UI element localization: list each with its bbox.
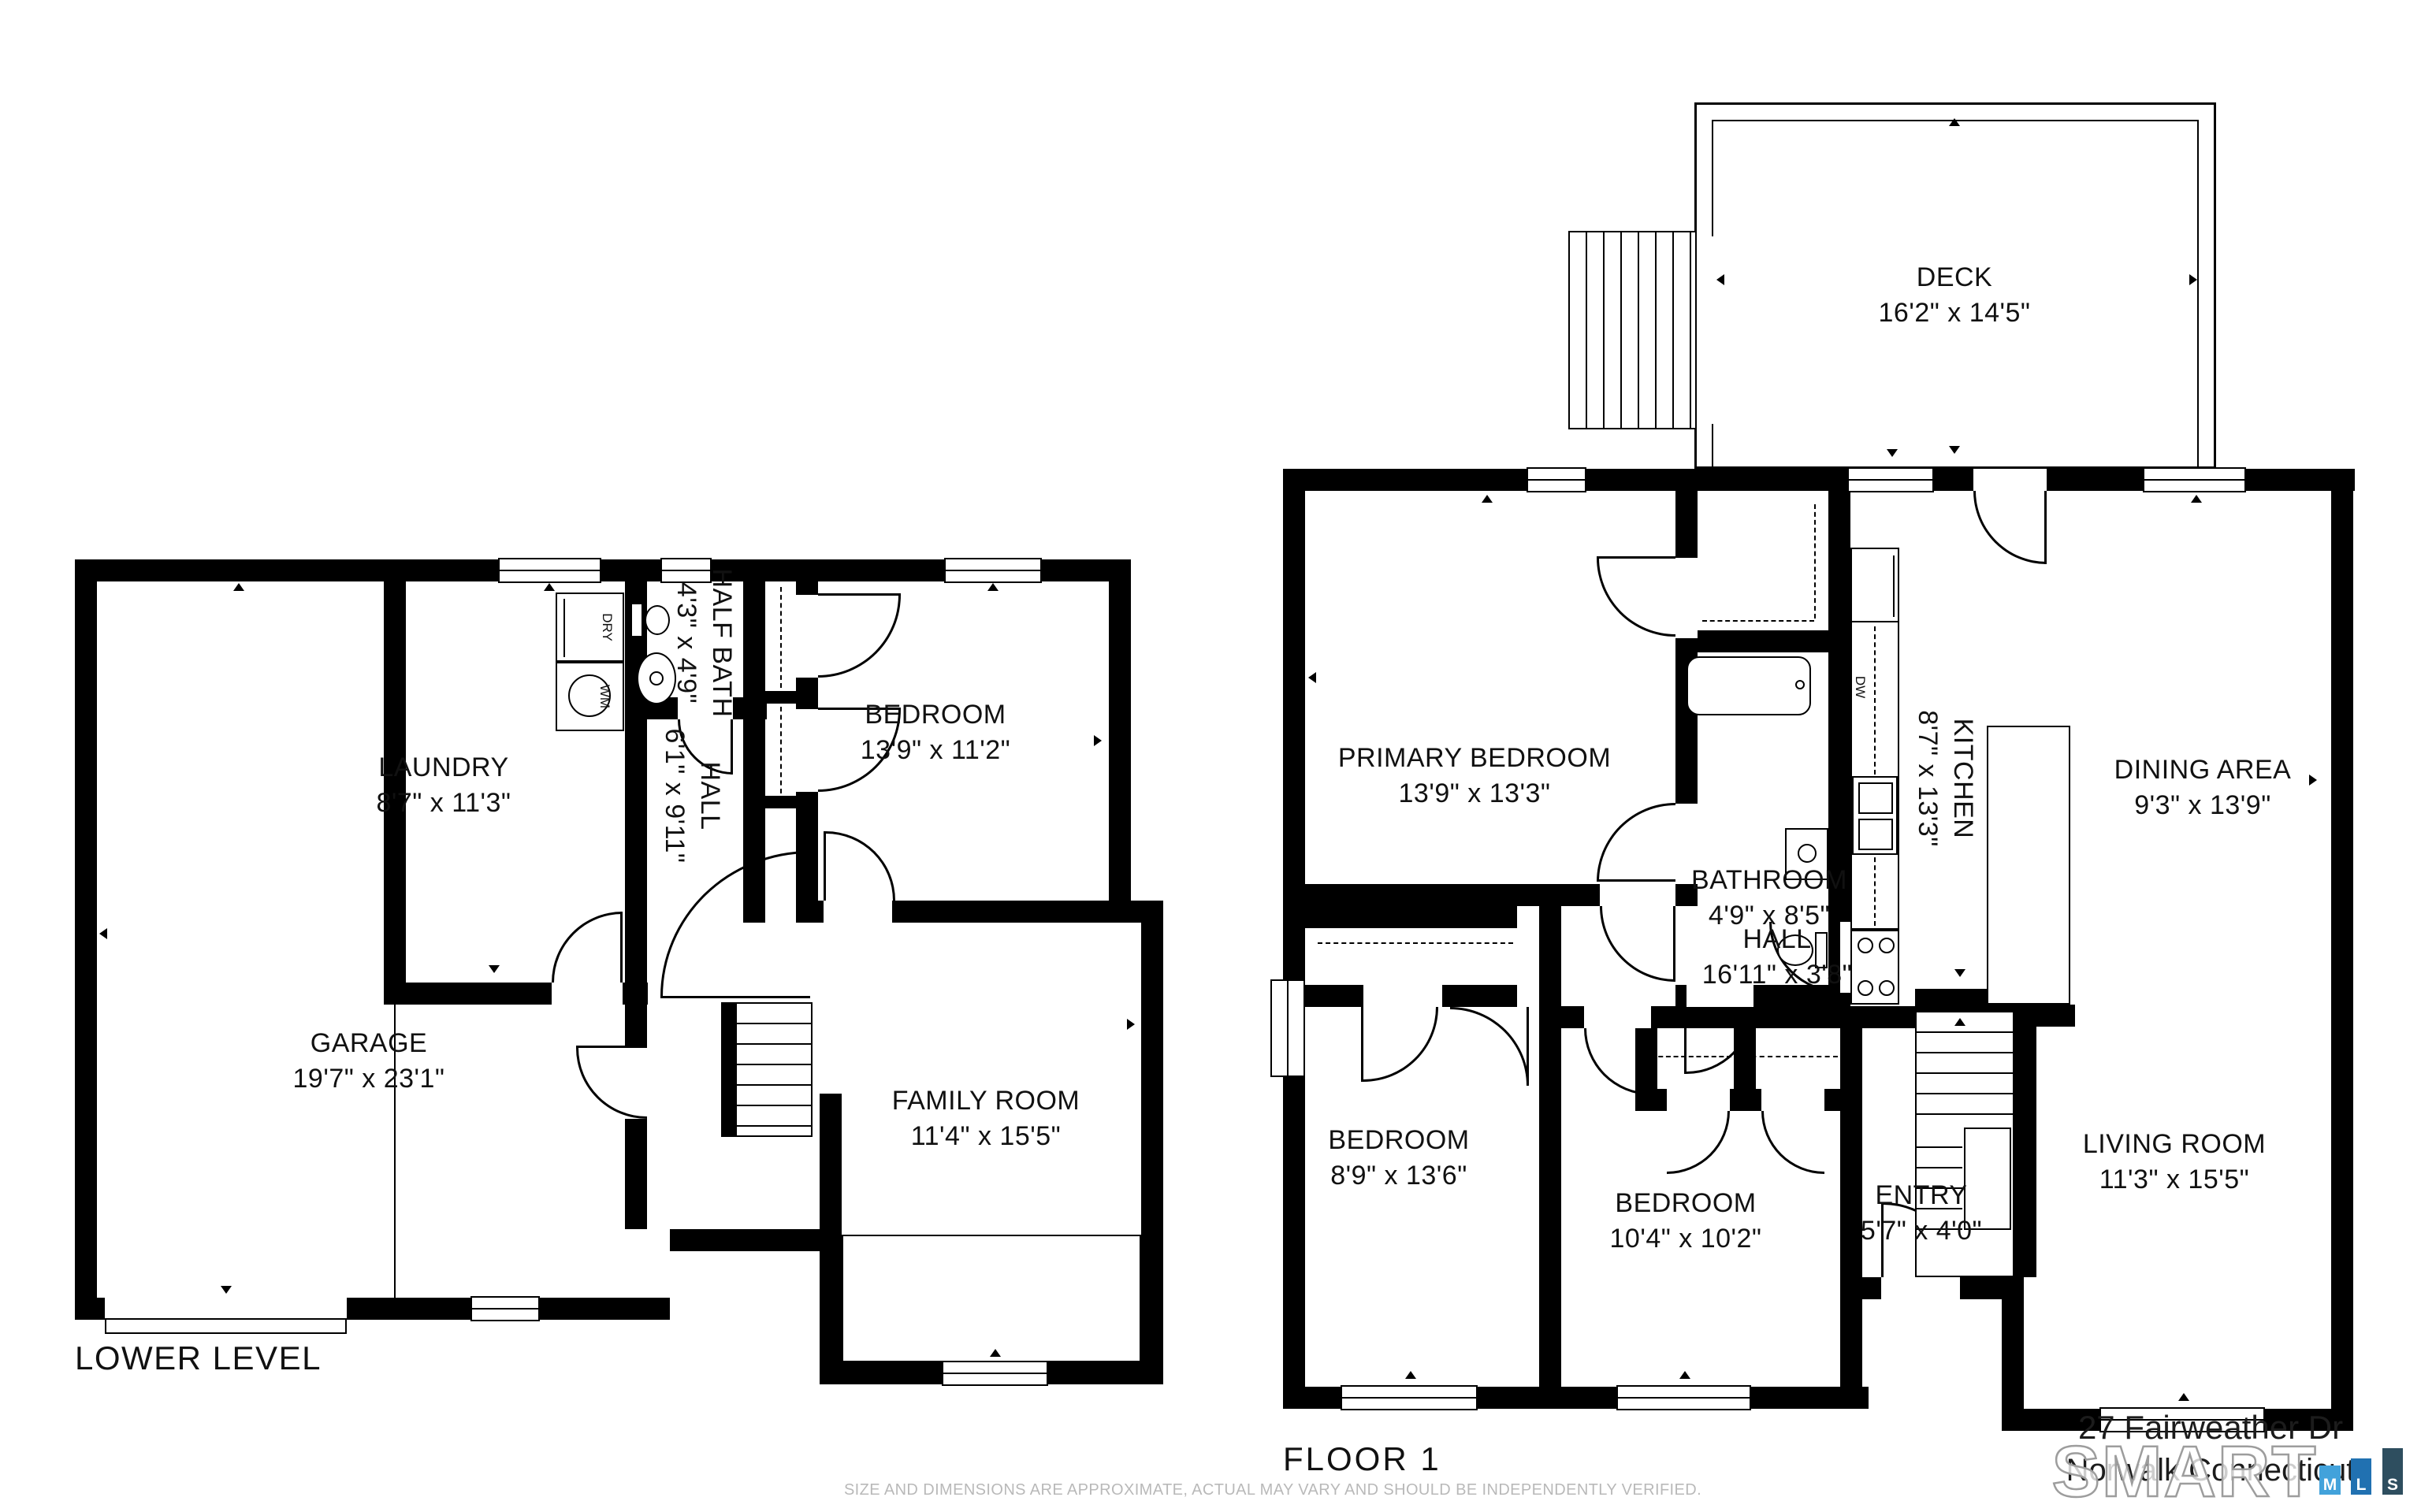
door-gap [1667, 1089, 1730, 1111]
mls-logo-l: L [2351, 1458, 2371, 1495]
room-name: GARAGE [251, 1026, 487, 1061]
wall [1675, 630, 1850, 652]
fridge-detail [1893, 555, 1895, 617]
door-arc [552, 912, 623, 983]
closet-dash-line [780, 587, 782, 688]
tick-marker [1127, 1019, 1135, 1030]
mls-letter: L [2356, 1476, 2367, 1495]
door-gap [1584, 1006, 1651, 1028]
tick-marker [544, 583, 555, 591]
wall [765, 796, 818, 808]
door-arc [576, 1048, 647, 1119]
disclaimer-text: SIZE AND DIMENSIONS ARE APPROXIMATE, ACT… [844, 1481, 1701, 1499]
room-dims: 9'3" x 13'9" [2065, 788, 2341, 823]
tick-marker [1949, 118, 1960, 126]
deck-stair-opening [1697, 236, 1713, 424]
room-name: HALL [692, 761, 727, 830]
dryer-detail-line [563, 599, 565, 657]
tick-marker [1405, 1371, 1416, 1379]
room-name: LIVING ROOM [2056, 1127, 2293, 1162]
room-dims: 13'9" x 11'2" [817, 733, 1054, 768]
door-gap [796, 709, 818, 792]
room-label-dining: DINING AREA 9'3" x 13'9" [2065, 752, 2341, 823]
mls-logo-s: S [2382, 1448, 2403, 1495]
door-arc [1363, 1007, 1438, 1082]
door-gap [1881, 1277, 1960, 1299]
room-label-bedroom-mid: BEDROOM 10'4" x 10'2" [1568, 1186, 1804, 1257]
room-label-kitchen: KITCHEN 8'7" x 13'3" [1902, 652, 1988, 905]
closet-dash-line [1643, 1056, 1731, 1057]
room-name: BATHROOM [1651, 863, 1887, 898]
tick-marker [987, 583, 999, 591]
window [498, 558, 601, 583]
tub-drain [1795, 680, 1805, 689]
wall [765, 691, 818, 704]
door-gap [1675, 558, 1698, 638]
tick-marker [1308, 672, 1316, 683]
dryer-label: DRY [599, 613, 615, 641]
room-dims: 16'2" x 14'5" [1836, 295, 2073, 331]
washer [556, 662, 624, 731]
wall [2002, 1277, 2024, 1431]
window [2143, 467, 2246, 492]
door-arc [1761, 1111, 1824, 1174]
room-name: BEDROOM [1281, 1123, 1517, 1158]
room-name: LAUNDRY [325, 750, 562, 786]
room-dims: 10'4" x 10'2" [1568, 1221, 1804, 1257]
door-arc [1584, 1028, 1651, 1095]
bay-window [1270, 979, 1305, 1077]
stairs-upper-flight [1917, 1012, 2013, 1127]
room-label-deck: DECK 16'2" x 14'5" [1836, 260, 2073, 331]
wall [2331, 469, 2353, 1431]
kitchen-sink [1852, 776, 1898, 855]
wall [1828, 1006, 1906, 1028]
garage-door-apron [105, 1318, 347, 1334]
room-dims: 19'7" x 23'1" [251, 1061, 487, 1097]
room-name: FAMILY ROOM [868, 1083, 1104, 1119]
sink-basin [1858, 782, 1893, 814]
lower-level-title: LOWER LEVEL [75, 1339, 322, 1377]
tick-marker [233, 583, 244, 591]
smart-mls-watermark: SMART [2046, 1431, 2323, 1512]
room-name: DECK [1836, 260, 2073, 295]
door-gap [824, 901, 892, 923]
room-label-bedroom-left: BEDROOM 8'9" x 13'6" [1281, 1123, 1517, 1194]
room-name: KITCHEN [1945, 719, 1980, 839]
door-gap [1363, 985, 1442, 1007]
room-dims: 6'1" x 9'11" [656, 728, 692, 863]
tick-marker [1949, 446, 1960, 454]
tick-marker [1954, 969, 1965, 977]
room-label-bedroom-lower: BEDROOM 13'9" x 11'2" [817, 697, 1054, 768]
window [470, 1296, 540, 1321]
room-name: HALL [1659, 922, 1895, 957]
stairs-lower [735, 1002, 813, 1137]
room-label-hall-floor1: HALL 16'11" x 3'8" [1659, 922, 1895, 993]
mls-letter: M [2323, 1476, 2337, 1495]
sink-bowl [1798, 844, 1817, 863]
door-gap [1761, 1089, 1824, 1111]
window [944, 558, 1042, 583]
door-gap [552, 983, 623, 1005]
door-gap [1973, 469, 2047, 491]
washer-label: WM [597, 685, 612, 708]
tick-marker [221, 1286, 232, 1294]
tick-marker [99, 928, 107, 939]
kitchen-island [1987, 726, 2070, 1005]
tick-marker [2189, 274, 2197, 285]
floor1-title: FLOOR 1 [1283, 1440, 1441, 1478]
wall [1283, 906, 1517, 928]
door-gap [796, 595, 818, 678]
door-arc [1597, 558, 1675, 637]
closet-dash-line [780, 707, 782, 793]
room-label-laundry: LAUNDRY 8'7" x 11'3" [325, 750, 562, 821]
tick-marker [1954, 1018, 1965, 1026]
closet-dash-line [1318, 942, 1513, 944]
tick-marker [489, 965, 500, 973]
room-dims: 8'7" x 11'3" [325, 786, 562, 821]
wall [1109, 559, 1131, 923]
room-name: BEDROOM [817, 697, 1054, 733]
room-label-hall-lower: HALL 6'1" x 9'11" [649, 678, 735, 914]
room-dims: 5'7" x 4'0" [1803, 1213, 2040, 1249]
door-arc [1450, 1007, 1529, 1086]
wall [75, 559, 97, 1320]
window [942, 1361, 1048, 1386]
wall [1141, 901, 1163, 1384]
room-label-entry: ENTRY 5'7" x 4'0" [1803, 1178, 2040, 1249]
door-arc [818, 595, 901, 678]
refrigerator [1850, 548, 1899, 622]
room-dims: 8'9" x 13'6" [1281, 1158, 1517, 1194]
room-dims: 13'9" x 13'3" [1337, 776, 1612, 812]
room-name: PRIMARY BEDROOM [1337, 741, 1612, 776]
tick-marker [1482, 495, 1493, 503]
tick-marker [2309, 775, 2317, 786]
window [1616, 1385, 1751, 1410]
toilet-tank [630, 603, 643, 637]
wall [820, 1094, 842, 1384]
room-dims: 11'4" x 15'5" [868, 1119, 1104, 1154]
door-arc [1973, 491, 2047, 564]
tick-marker [990, 1349, 1001, 1357]
room-label-primary-bedroom: PRIMARY BEDROOM 13'9" x 13'3" [1337, 741, 1612, 812]
wall [1539, 906, 1561, 1409]
room-name: DINING AREA [2065, 752, 2341, 788]
wall [670, 1229, 842, 1251]
window [1847, 467, 1934, 492]
garage-door-opening [105, 1298, 347, 1320]
closet-dash-line [1743, 1056, 1838, 1057]
closet-dash-line [1814, 504, 1816, 619]
tick-marker [1887, 449, 1898, 457]
tick-marker [2178, 1393, 2189, 1401]
tick-marker [1094, 735, 1102, 746]
tick-marker [2191, 495, 2202, 503]
closet-dash-line [1702, 620, 1814, 622]
bathtub [1687, 656, 1811, 715]
room-label-garage: GARAGE 19'7" x 23'1" [251, 1026, 487, 1097]
room-name: BEDROOM [1568, 1186, 1804, 1221]
mls-letter: S [2387, 1476, 2398, 1495]
family-room-floor-line [842, 1235, 1141, 1362]
window [1341, 1385, 1478, 1410]
tick-marker [1679, 1371, 1690, 1379]
room-label-family-room: FAMILY ROOM 11'4" x 15'5" [868, 1083, 1104, 1154]
door-arc [1667, 1111, 1730, 1174]
room-dims: 11'3" x 15'5" [2056, 1162, 2293, 1198]
floorplan-page: DRY WM GARAGE 19'7" x 23'1" LAUNDRY 8'7"… [0, 0, 2421, 1512]
tick-marker [1716, 274, 1724, 285]
wall [1283, 469, 1305, 1409]
door-gap [1517, 928, 1539, 1007]
room-dims: 8'7" x 13'3" [1910, 710, 1945, 847]
mls-logo-m: M [2319, 1466, 2341, 1495]
window [1527, 467, 1586, 492]
wall [721, 1002, 735, 1137]
door-arc [826, 831, 895, 901]
dishwasher-label: DW [1852, 676, 1868, 698]
room-label-living: LIVING ROOM 11'3" x 15'5" [2056, 1127, 2293, 1198]
deck-stairs [1568, 231, 1697, 429]
room-dims: 16'11" x 3'8" [1659, 957, 1895, 993]
sink-basin [1858, 819, 1893, 850]
room-name: ENTRY [1803, 1178, 2040, 1213]
